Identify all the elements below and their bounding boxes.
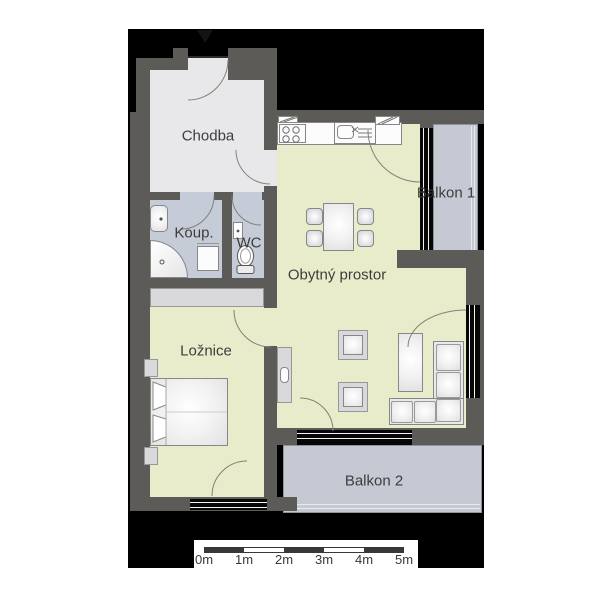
tv-table	[398, 333, 423, 392]
sofa-cushion	[436, 372, 461, 398]
sink-basin	[337, 125, 354, 139]
washing-machine-icon	[197, 246, 219, 271]
scale-label-0m: 0m	[195, 552, 213, 567]
wall	[130, 192, 180, 200]
wall	[173, 48, 188, 70]
nightstand	[144, 447, 158, 465]
nightstand	[144, 359, 158, 377]
scale-label-3m: 3m	[315, 552, 333, 567]
chair	[357, 208, 374, 225]
entrance-arrow-icon	[197, 30, 213, 43]
room-label-koupelna: Koup.	[174, 225, 213, 242]
wall-cabinet-symbol	[278, 116, 298, 123]
scale-label-5m: 5m	[395, 552, 413, 567]
wall	[228, 48, 277, 80]
room-label-chodba: Chodba	[182, 128, 235, 145]
scale-label-4m: 4m	[355, 552, 373, 567]
wall	[397, 250, 484, 268]
room-label-loznice: Ložnice	[180, 343, 232, 360]
scale-label-1m: 1m	[235, 552, 253, 567]
floorplan-canvas: Chodba Koup. WC Obytný prostor Ložnice B…	[0, 0, 600, 600]
armchair-seat	[343, 335, 363, 355]
chair	[306, 208, 323, 225]
sofa-cushion	[436, 399, 461, 422]
room-label-obytny-prostor: Obytný prostor	[288, 267, 386, 284]
wall	[264, 346, 277, 428]
balkon-2-railing	[285, 508, 480, 509]
sofa-cushion	[391, 401, 413, 423]
wall	[264, 80, 277, 150]
stove-icon	[279, 124, 306, 143]
window-balkon-2-door	[297, 430, 412, 445]
bed	[150, 378, 228, 446]
sofa-cushion	[436, 344, 461, 371]
doorway-loznice	[264, 308, 277, 346]
wardrobe	[150, 288, 264, 307]
window-living-right	[466, 305, 480, 398]
room-label-balkon-2: Balkon 2	[345, 473, 403, 490]
doorway-wc	[233, 192, 262, 200]
wall	[262, 192, 277, 200]
sofa-cushion	[414, 401, 436, 423]
cabinet-handle	[280, 367, 289, 383]
room-label-wc: WC	[237, 235, 262, 252]
doorway-chodba-living	[264, 150, 277, 186]
wall-cabinet-symbol	[375, 116, 400, 125]
scale-bar-background	[194, 540, 418, 568]
window-loznice	[190, 499, 267, 510]
doorway-koupelna	[180, 192, 214, 200]
chair	[306, 230, 323, 247]
dining-table	[323, 203, 354, 251]
wall	[222, 200, 232, 278]
balkon-2-railing	[285, 504, 480, 505]
room-label-balkon-1: Balkon 1	[417, 185, 475, 202]
wall	[130, 278, 277, 288]
armchair-seat	[343, 387, 363, 407]
chair	[357, 230, 374, 247]
wall	[264, 186, 277, 308]
scale-label-2m: 2m	[275, 552, 293, 567]
washbasin-icon	[150, 205, 168, 232]
shelf-line	[197, 243, 219, 244]
wall	[136, 58, 150, 112]
wall	[214, 192, 233, 200]
